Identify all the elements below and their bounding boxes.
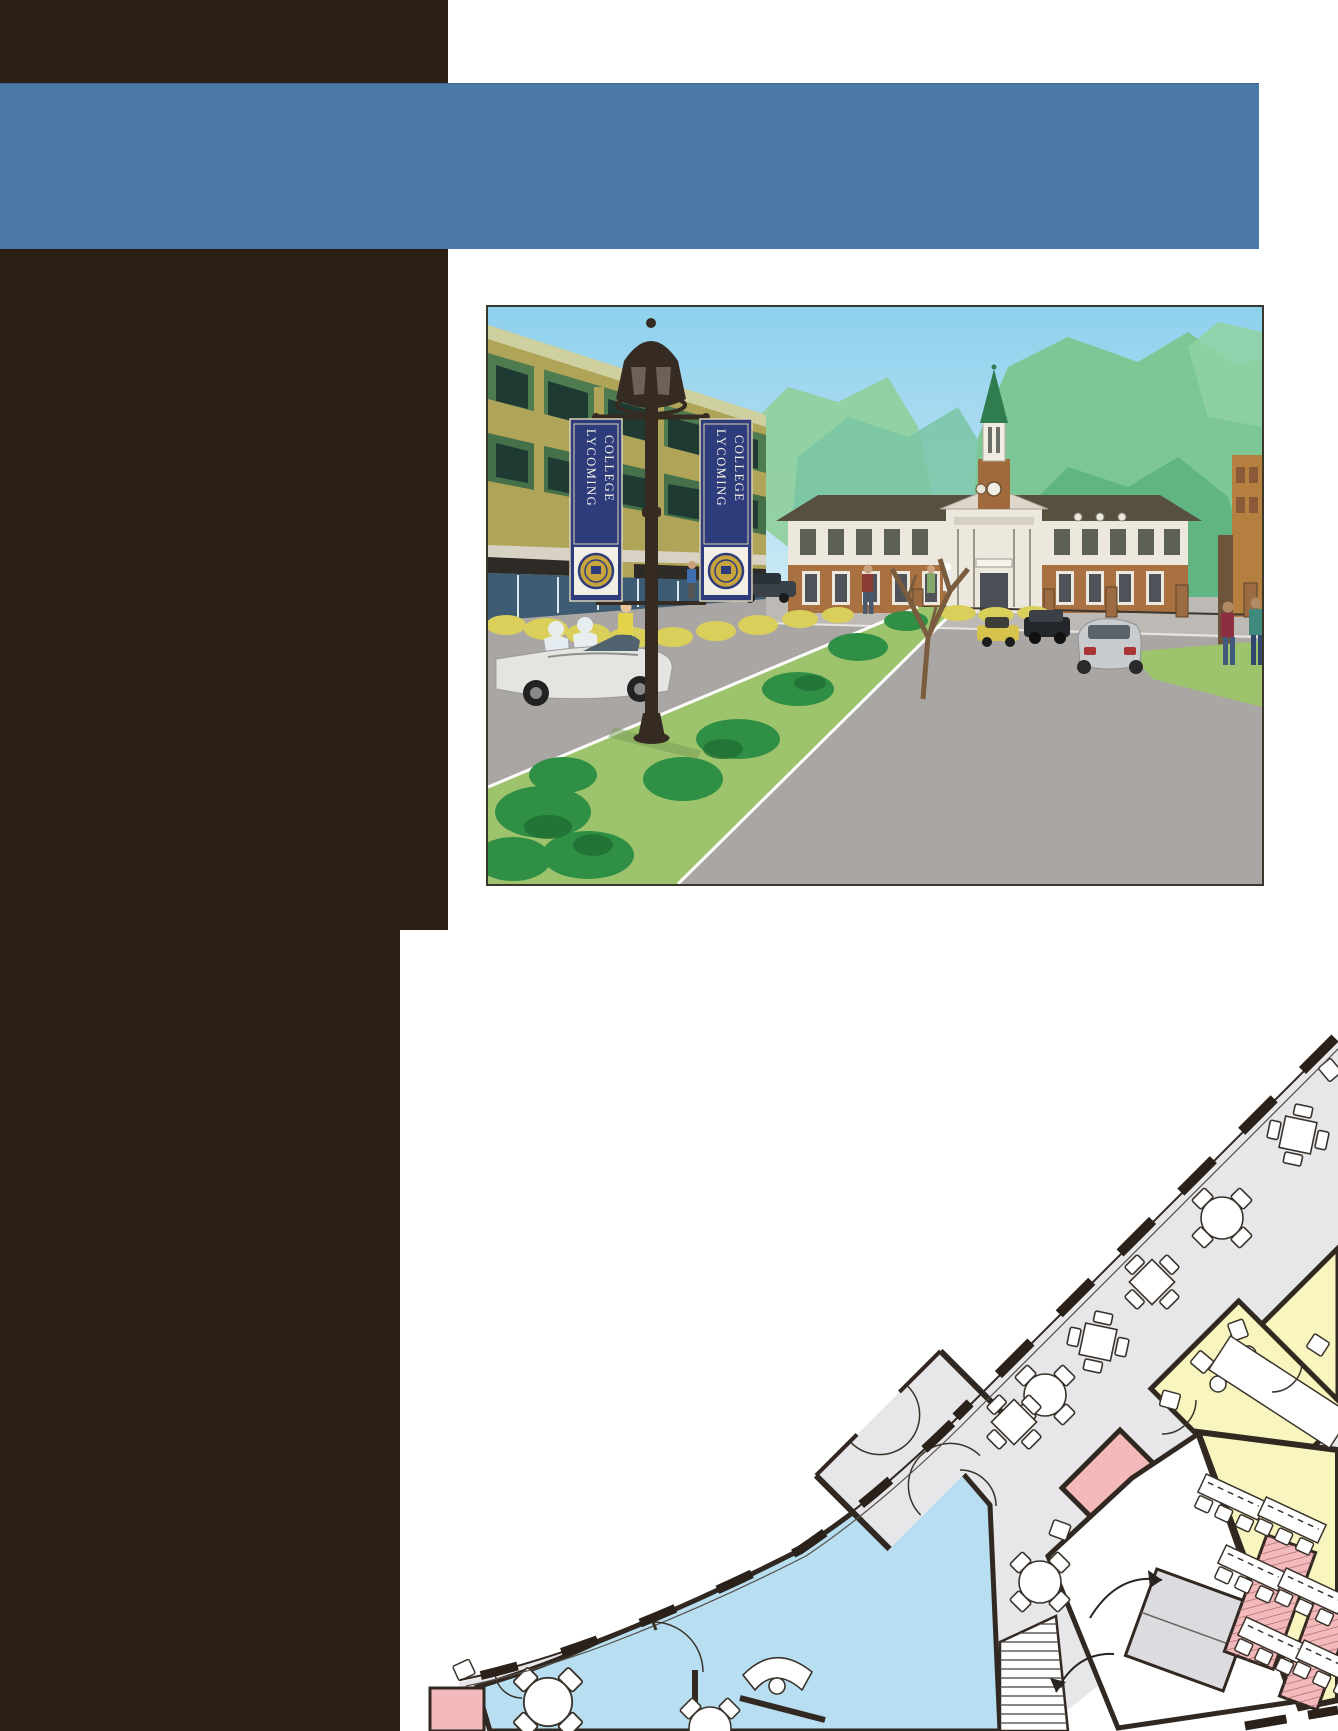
street-rendering-canvas: LYCOMING COLLEGE LYCOMING COLLEGE <box>488 307 1262 884</box>
document-page: { "page": { "background": "#ffffff", "si… <box>0 0 1338 1731</box>
banner-right-line1: LYCOMING <box>714 429 728 507</box>
banner-left-line1: LYCOMING <box>584 429 598 507</box>
college-seal-icon <box>579 554 613 588</box>
car-silver-rear <box>1077 619 1143 674</box>
building-sign <box>976 559 1012 567</box>
banner-right-line2: COLLEGE <box>732 435 746 502</box>
floor-plan-figure <box>400 930 1338 1731</box>
street-rendering-figure: LYCOMING COLLEGE LYCOMING COLLEGE <box>486 305 1264 886</box>
floor-plan-canvas <box>400 930 1338 1731</box>
banner-right: LYCOMING COLLEGE <box>700 419 752 601</box>
banner-left-line2: COLLEGE <box>602 435 616 502</box>
office-chair <box>769 1678 785 1694</box>
title-band <box>0 83 1259 249</box>
college-seal-icon <box>709 554 743 588</box>
banner-left: LYCOMING COLLEGE <box>570 419 622 601</box>
left-sidebar-panel <box>0 0 448 1731</box>
